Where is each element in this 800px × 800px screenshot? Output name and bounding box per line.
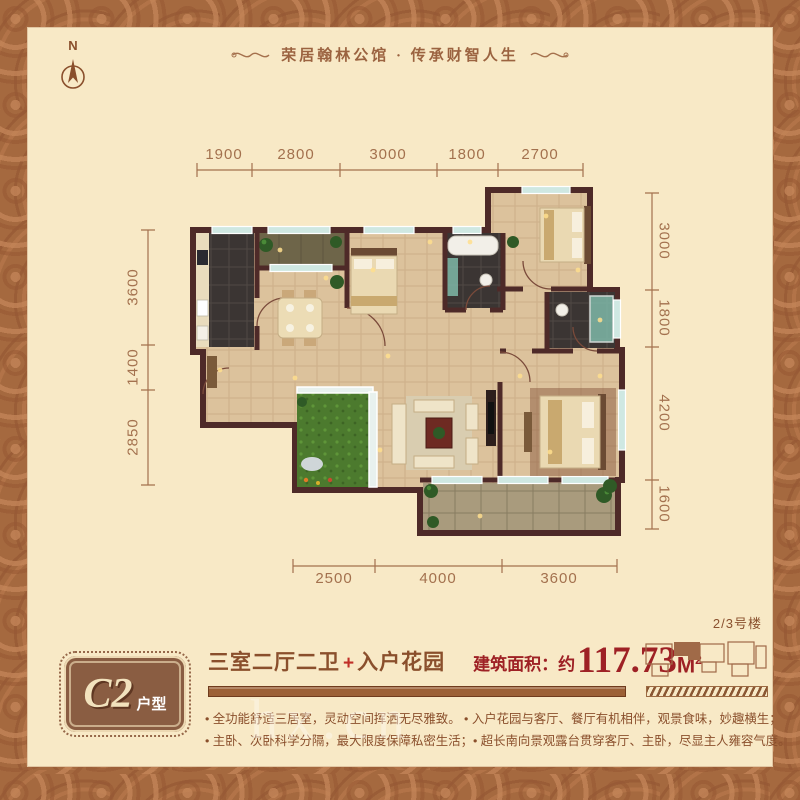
poster-frame: 荣居翰林公馆 · 传承财智人生 N bbox=[0, 0, 800, 800]
garden-label: 入户花园 bbox=[357, 646, 445, 676]
dimension-label: 3600 bbox=[540, 570, 577, 587]
building-number-label: 2/3号楼 bbox=[644, 613, 762, 632]
page-title: 荣居翰林公馆 · 传承财智人生 bbox=[281, 44, 519, 65]
area-label: 建筑面积：约 bbox=[473, 650, 575, 675]
bullet-line: • 全功能舒适三居室，灵动空间挥洒无尽雅致。 • 入户花园与客厅、餐厅有机相伴，… bbox=[205, 708, 773, 730]
bullet-line: • 主卧、次卧科学分隔，最大限度保障私密生活；• 超长南向景观露台贯穿客厅、主卧… bbox=[205, 730, 773, 752]
building-key-plan bbox=[644, 634, 768, 688]
tv-cabinet bbox=[486, 390, 496, 446]
dimension-label: 4000 bbox=[419, 570, 456, 587]
dimension-label: 3000 bbox=[369, 146, 406, 163]
compass-north-label: N bbox=[56, 40, 90, 52]
dimension-label: 2500 bbox=[315, 570, 352, 587]
header: 荣居翰林公馆 · 传承财智人生 bbox=[0, 44, 800, 65]
north-arrow-icon bbox=[56, 52, 90, 92]
unit-model-label: C2 bbox=[83, 674, 132, 714]
entrance-garden-area bbox=[297, 387, 377, 487]
kitchen-area bbox=[196, 233, 254, 347]
dimension-label: 3000 bbox=[656, 222, 673, 259]
unit-type-label: 户型 bbox=[137, 693, 167, 714]
dimension-label: 2700 bbox=[521, 146, 558, 163]
divider-bar-solid bbox=[208, 686, 626, 697]
bathroom-1-area bbox=[445, 233, 501, 308]
unit-title-row: 三室二厅二卫 + 入户花园 建筑面积：约 117.73 M2 bbox=[208, 646, 702, 676]
highlighted-unit bbox=[674, 642, 700, 660]
dimension-label: 1600 bbox=[656, 485, 673, 522]
terrace-area bbox=[423, 483, 615, 530]
compass: N bbox=[56, 40, 90, 97]
dimension-label: 1400 bbox=[125, 348, 142, 385]
dimension-label: 1900 bbox=[205, 146, 242, 163]
unit-badge: C2 户型 bbox=[64, 656, 186, 732]
dimension-label: 4200 bbox=[656, 394, 673, 431]
service-balcony-area bbox=[257, 233, 347, 266]
dimension-label: 3600 bbox=[125, 268, 142, 305]
sofa-set bbox=[392, 396, 478, 470]
bathroom-2-area bbox=[547, 292, 615, 348]
feature-bullets: • 全功能舒适三居室，灵动空间挥洒无尽雅致。 • 入户花园与客厅、餐厅有机相伴，… bbox=[205, 708, 773, 752]
dimension-label: 2850 bbox=[125, 418, 142, 455]
dimension-label: 1800 bbox=[448, 146, 485, 163]
dimension-label: 2800 bbox=[277, 146, 314, 163]
plus-icon: + bbox=[343, 653, 354, 675]
rooms-label: 三室二厅二卫 bbox=[208, 646, 340, 676]
floor-plan bbox=[130, 150, 680, 590]
flourish-right-icon bbox=[529, 48, 569, 62]
flourish-left-icon bbox=[231, 48, 271, 62]
dimension-label: 1800 bbox=[656, 299, 673, 336]
bedroom-2-bed bbox=[351, 248, 397, 314]
